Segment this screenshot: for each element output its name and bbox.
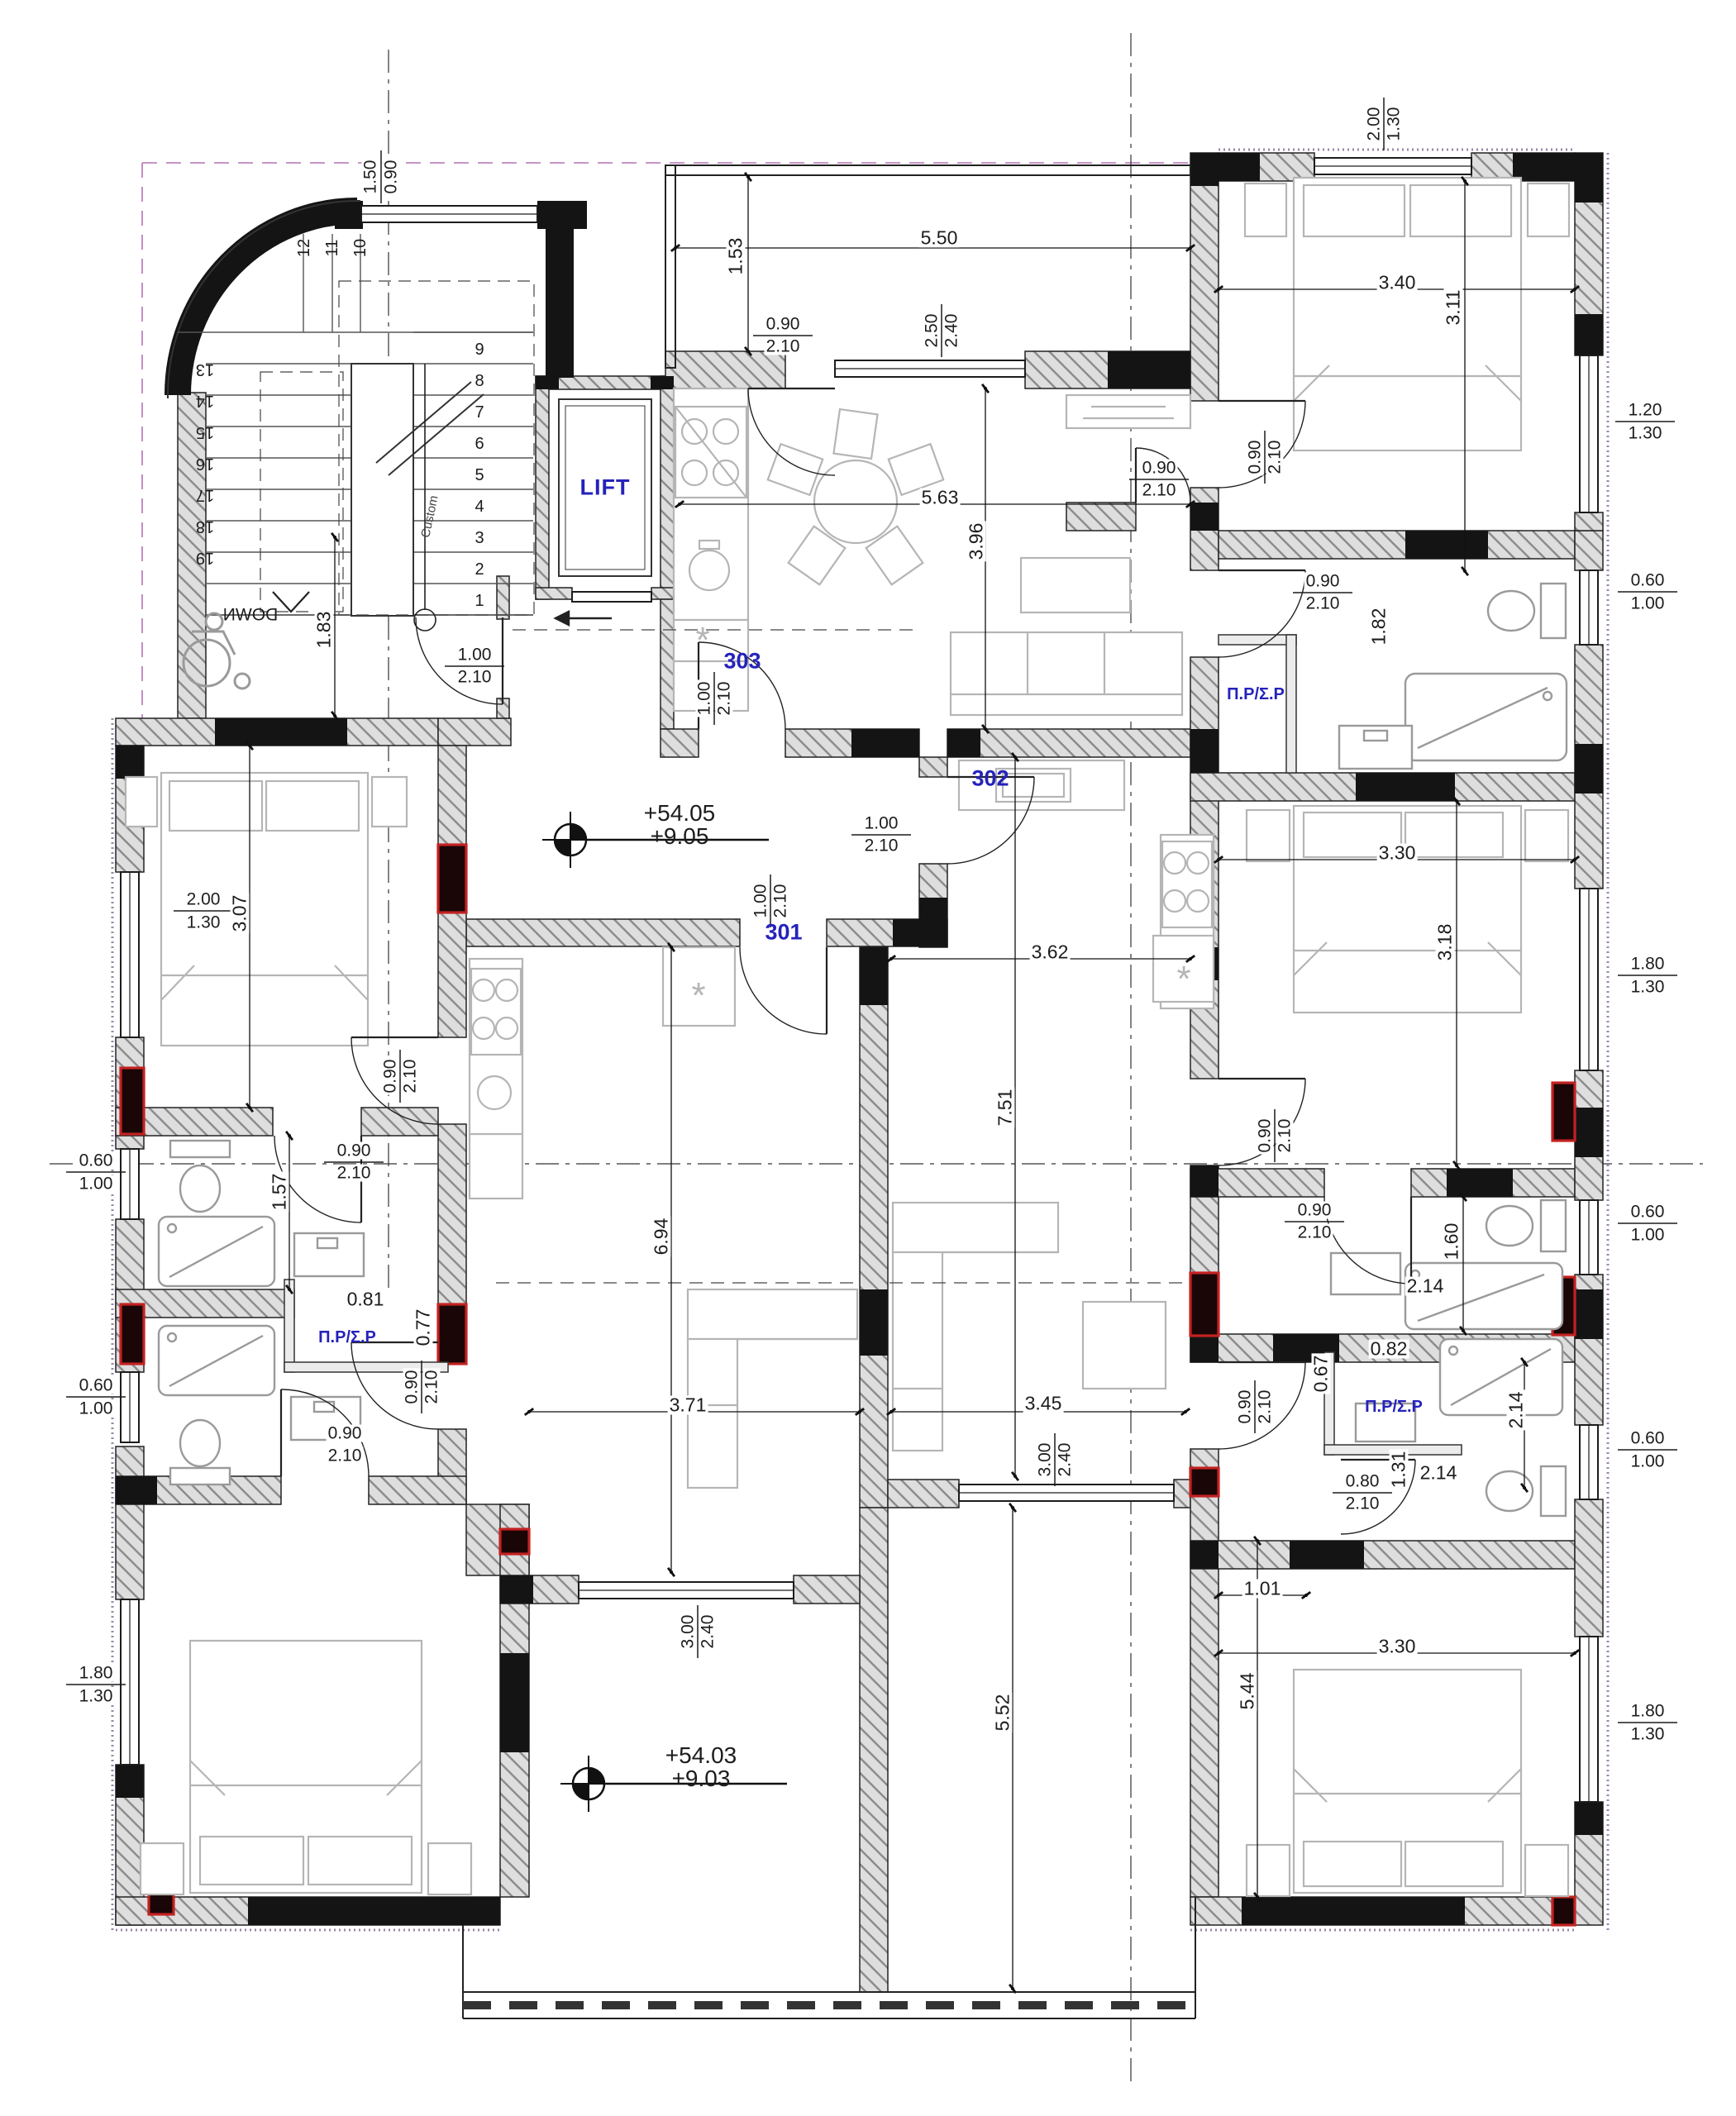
dimension-label: 3.30 [1377,844,1418,863]
stair-step-number: 16 [194,455,216,472]
dimension-label: 5.50 [919,229,960,248]
floor-plan-drawing [0,0,1736,2116]
dimension-label: 1.80 [78,1665,115,1682]
stair-step-number: 12 [296,237,312,259]
stair-step-number: 17 [194,487,216,503]
stair-step-number: 15 [194,424,216,441]
dimension-label: 2.00 [1366,106,1383,143]
dimension-label: 1.00 [78,1400,115,1418]
stair-step-number: 13 [194,361,216,378]
storage-room-label: Π.Ρ/Σ.Ρ [1225,686,1286,703]
dimension-label: 1.00 [863,815,900,832]
dimension-label: 2.10 [1304,595,1342,612]
dimension-label: 0.60 [1629,572,1667,589]
dimension-label: 3.71 [668,1396,708,1415]
dimension-label: 1.00 [696,680,713,717]
dimension-label: 3.45 [1023,1394,1064,1413]
level-marker-label: +54.03 [664,1744,738,1767]
dimension-label: 7.51 [996,1088,1015,1128]
floor-plan: 1.500.905.501.532.502.402.001.303.403.11… [0,0,1736,2116]
down-label: DOWN [222,607,280,624]
dimension-label: 1.82 [1370,607,1389,647]
dimension-label: 2.10 [1344,1495,1381,1513]
dimension-label: 3.18 [1436,922,1455,963]
dimension-label: 1.30 [185,914,222,932]
dimension-label: 2.14 [1419,1464,1459,1483]
dimension-label: 1.30 [1627,425,1664,442]
stair-spine-wall [351,364,413,616]
dimension-label: 2.10 [336,1165,373,1182]
dimension-label: 2.10 [1141,482,1178,499]
dimension-label: 2.10 [772,883,789,920]
entry-arrow-icon [556,612,612,625]
stair-step-number: 18 [194,518,216,535]
dimension-label: 0.90 [1296,1202,1333,1219]
stair-step-number: 1 [473,593,485,609]
apartment-number-label: 302 [970,768,1010,790]
dimension-label: 1.53 [727,236,746,277]
dimension-label: 0.90 [765,316,802,333]
dimension-label: 0.90 [1141,460,1178,477]
dimension-label: 3.11 [1444,288,1463,326]
dimension-label: 1.80 [1629,1703,1667,1720]
stair-step-number: 14 [194,393,216,409]
dimension-label: 2.10 [423,1369,441,1406]
dimension-label: 6.94 [652,1217,671,1257]
dimension-label: 2.10 [863,837,900,855]
dimension-label: 1.83 [315,610,334,651]
dimension-label: 0.60 [1629,1203,1667,1221]
dimension-label: 1.00 [752,883,770,920]
dimension-label: 0.81 [346,1290,386,1309]
dimension-label: 2.10 [765,338,802,355]
balcony-railings [463,165,1195,2018]
dimension-label: 1.01 [1242,1580,1283,1599]
dimension-label: 1.00 [1629,595,1667,612]
apartment-number-label: 301 [763,922,804,944]
stair-step-number: 3 [473,530,485,546]
dimension-label: 0.80 [1344,1473,1381,1490]
dimension-label: 1.00 [78,1175,115,1193]
fixture-symbol: * [689,978,707,1014]
fixture-symbol: * [694,622,711,659]
dimension-label: 0.90 [403,1369,421,1406]
dimension-label: 0.90 [327,1425,364,1442]
stair-step-number: 6 [473,436,485,452]
dashed-guides [496,630,1189,1283]
stair-step-number: 5 [473,467,485,484]
dimension-label: 1.80 [1629,956,1667,973]
dimension-label: 5.52 [994,1693,1013,1733]
dimension-label: 1.30 [1629,1726,1667,1743]
dimension-label: 2.40 [699,1613,717,1651]
fixture-symbol: * [1175,961,1192,998]
level-marker-label: +9.03 [670,1767,732,1790]
dimension-label: 0.90 [1247,439,1264,476]
stair-step-number: 8 [473,373,485,389]
dimension-label: 1.00 [1629,1453,1667,1470]
dimension-label: 2.14 [1405,1277,1446,1296]
stair-step-number: 11 [324,238,341,259]
dimension-label: 2.10 [1296,1224,1333,1241]
stair-step-number: 4 [473,498,485,515]
dimension-label: 0.90 [1237,1389,1254,1426]
dimension-label: 3.96 [967,522,986,562]
dimension-label: 1.00 [456,646,494,664]
stair-step-number: 19 [194,550,216,566]
storage-room-label: Π.Ρ/Σ.Ρ [1363,1399,1424,1415]
dimension-label: 2.10 [402,1058,419,1095]
dimension-label: 1.00 [1629,1227,1667,1244]
stair-step-number: 7 [473,404,485,421]
furniture [126,178,1569,1896]
apartment-number-label: 303 [722,651,762,673]
dimension-label: 0.90 [1257,1118,1274,1155]
dimension-label: 2.50 [923,312,941,350]
dimension-label: 2.14 [1507,1390,1526,1431]
dimension-label: 3.62 [1030,943,1071,962]
dimension-label: 3.00 [1037,1442,1054,1479]
dimension-label: 5.44 [1238,1671,1257,1712]
storage-room-label: Π.Ρ/Σ.Ρ [317,1329,378,1346]
dimension-label: 3.07 [231,894,250,934]
lift-label: LIFT [579,477,632,499]
dimension-label: 0.90 [1304,573,1342,590]
dimension-label: 0.90 [336,1142,373,1160]
dimension-label: 1.60 [1443,1222,1462,1262]
dimension-label: 1.30 [1385,106,1403,143]
dimension-label: 5.63 [920,488,961,508]
dimension-label: 1.31 [1390,1450,1409,1490]
dimension-label: 3.40 [1377,274,1418,293]
dimension-label: 0.82 [1369,1340,1409,1359]
level-marker-label: +54.05 [642,802,717,825]
dimension-label: 3.00 [680,1613,697,1651]
dimension-label: 3.30 [1377,1637,1418,1656]
dimension-label: 0.90 [383,159,400,196]
dimension-label: 2.40 [1056,1442,1074,1479]
stair-step-number: 9 [473,341,485,358]
dimension-label: 1.20 [1627,402,1664,419]
dimension-label: 0.67 [1312,1354,1331,1394]
dimension-label: 2.10 [456,669,494,686]
dimension-label: 2.10 [1276,1118,1294,1155]
stair-step-number: 2 [473,561,485,578]
dimension-label: 1.30 [78,1688,115,1705]
dimension-label: 1.50 [362,159,379,196]
dimension-label: 2.00 [185,891,222,908]
level-marker-label: +9.05 [649,825,711,848]
dimension-label: 0.60 [78,1152,115,1170]
dimension-label: 2.10 [716,680,733,717]
dimension-label: 0.77 [414,1308,433,1348]
dimension-label: 2.10 [1257,1389,1274,1426]
dimension-label: 2.40 [943,312,961,350]
dimension-label: 0.90 [382,1058,399,1095]
dimension-label: 1.30 [1629,979,1667,996]
dimension-label: 1.57 [270,1172,289,1213]
dimension-label: 2.10 [1266,439,1284,476]
dimension-label: 0.60 [78,1377,115,1394]
dimension-label: 0.60 [1629,1430,1667,1447]
stair-step-number: 10 [352,237,369,259]
dimension-label: 2.10 [327,1447,364,1465]
